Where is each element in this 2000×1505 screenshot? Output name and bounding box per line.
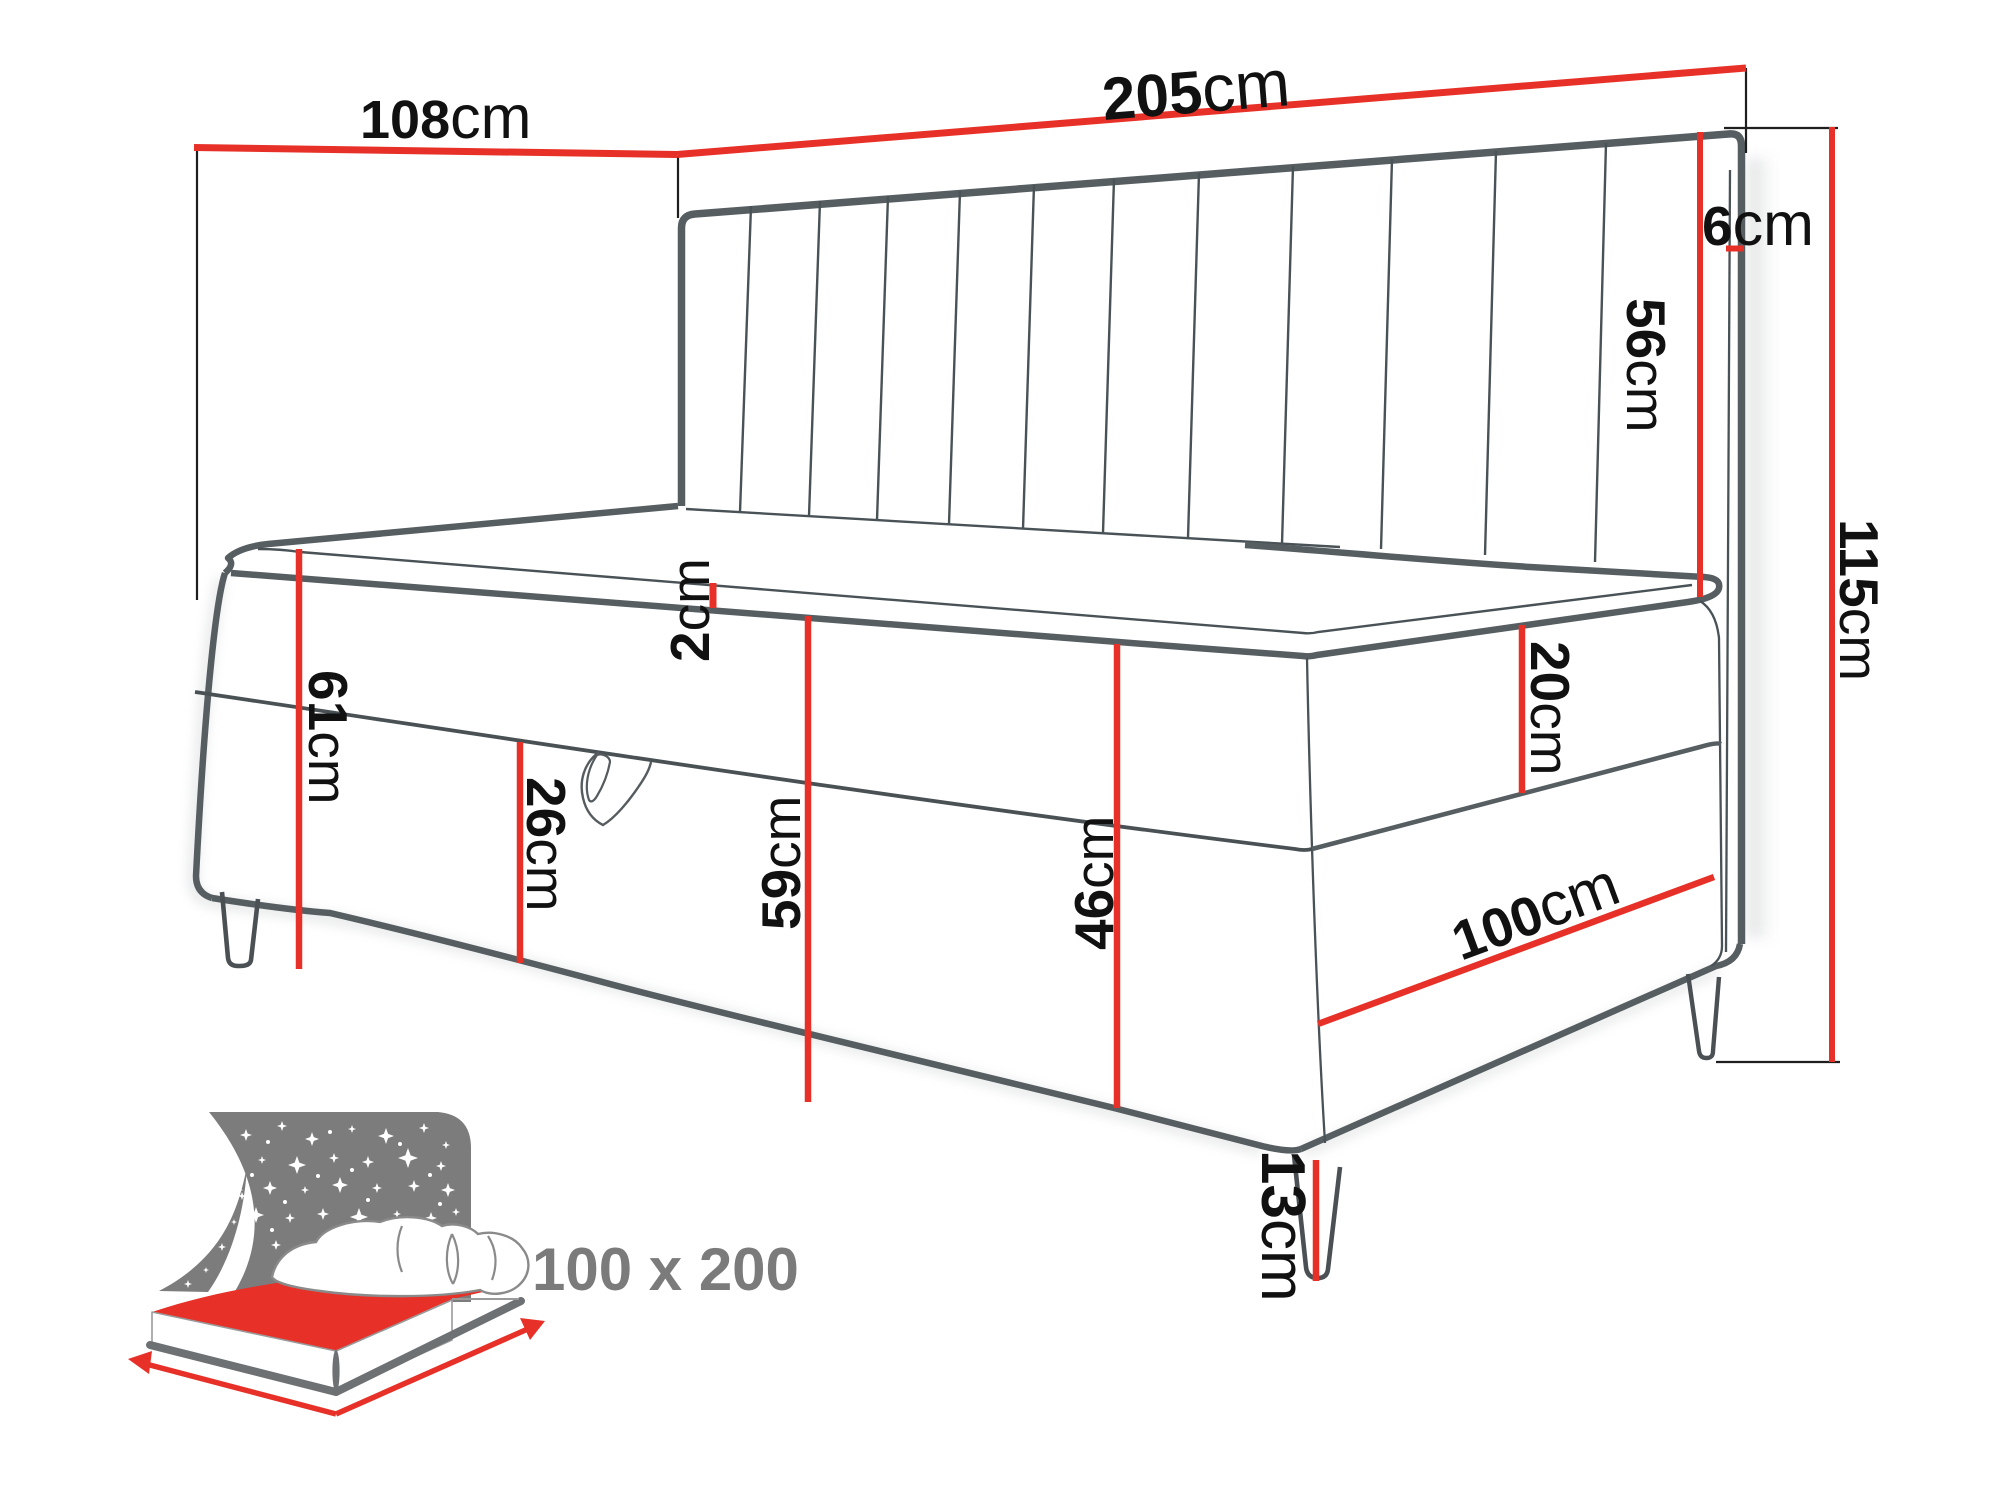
svg-text:2cm: 2cm <box>659 558 721 662</box>
svg-text:108cm: 108cm <box>360 83 531 151</box>
svg-text:26cm: 26cm <box>515 777 577 912</box>
svg-text:6cm: 6cm <box>1702 190 1814 258</box>
svg-text:61cm: 61cm <box>297 670 359 805</box>
svg-text:56cm: 56cm <box>1615 298 1677 433</box>
svg-text:20cm: 20cm <box>1519 641 1581 776</box>
svg-text:115cm: 115cm <box>1828 519 1890 681</box>
svg-text:13cm: 13cm <box>1248 1150 1317 1302</box>
svg-text:59cm: 59cm <box>750 795 812 930</box>
svg-text:46cm: 46cm <box>1063 815 1125 950</box>
svg-text:100 x 200: 100 x 200 <box>532 1236 799 1303</box>
